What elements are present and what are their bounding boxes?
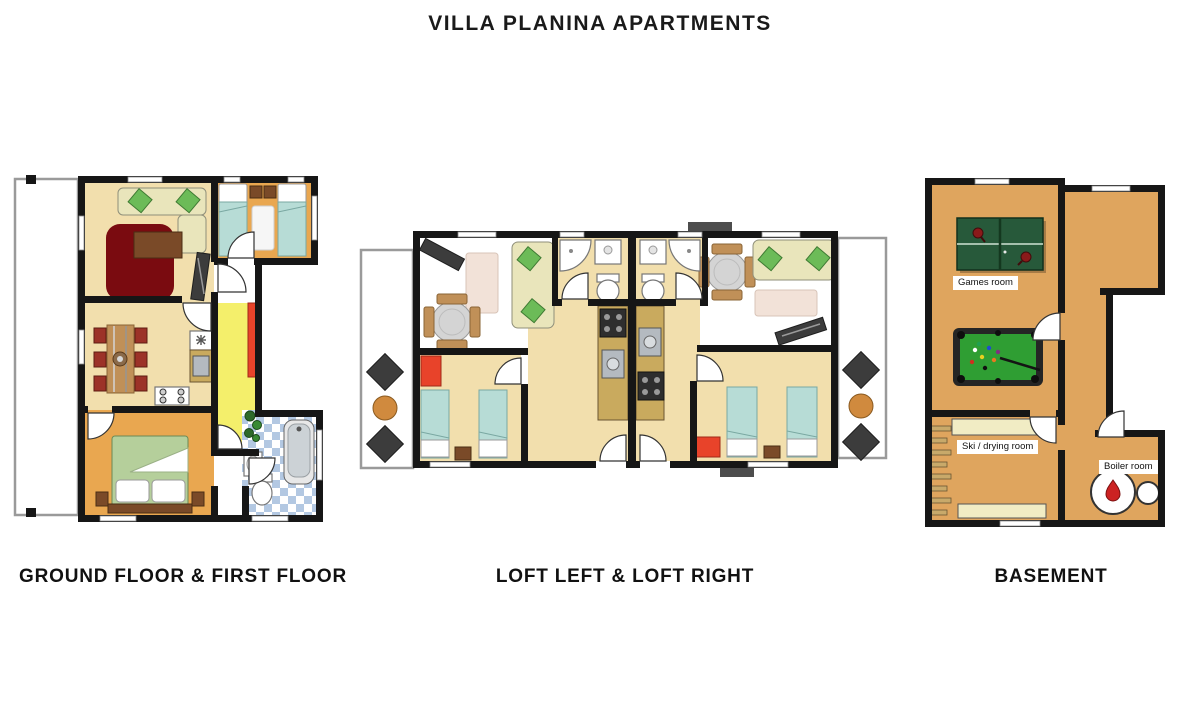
dining-table-icon <box>707 252 747 292</box>
bed-icon <box>479 390 507 458</box>
basement-floor-plan <box>918 172 1170 532</box>
window-icon <box>762 232 800 237</box>
window-icon <box>100 516 136 521</box>
sink-icon <box>604 246 612 254</box>
bench-icon <box>952 419 1040 435</box>
window-icon <box>430 462 470 467</box>
window-icon <box>128 177 162 182</box>
bed-icon <box>421 390 449 458</box>
stool-icon <box>764 446 780 458</box>
window-icon <box>252 516 288 521</box>
window-icon <box>1092 186 1130 191</box>
window-icon <box>1000 521 1040 526</box>
loft-floor-plan <box>355 222 890 480</box>
toilet-icon <box>642 280 664 302</box>
plate-icon <box>117 356 123 362</box>
bed-icon <box>278 184 306 256</box>
window-icon <box>224 177 240 182</box>
loft-caption: LOFT LEFT & LOFT RIGHT <box>496 566 754 588</box>
rug-icon <box>755 290 817 316</box>
ground-first-floor-caption: GROUND FLOOR & FIRST FLOOR <box>19 566 347 588</box>
wardrobe-icon <box>694 437 720 457</box>
pool-table-icon <box>953 328 1043 386</box>
bathtub-icon <box>284 420 314 484</box>
balcony-table-icon <box>373 396 397 420</box>
balcony-table-icon <box>849 394 873 418</box>
washer-dial <box>196 335 206 345</box>
window-icon <box>678 232 702 237</box>
balcony <box>15 179 78 515</box>
kitchen-counter <box>636 306 664 420</box>
nightstand-icon <box>96 492 108 506</box>
window-icon <box>458 232 496 237</box>
stove-icon <box>638 372 664 400</box>
corridor-floor <box>214 453 242 515</box>
rug-icon <box>252 206 274 250</box>
wardrobe-icon <box>421 356 441 386</box>
window-icon <box>79 216 84 250</box>
page-title: VILLA PLANINA APARTMENTS <box>0 12 1200 36</box>
window-icon <box>975 179 1009 184</box>
bed-icon <box>787 387 817 457</box>
bed-icon <box>727 387 757 457</box>
window-icon <box>312 196 317 240</box>
stove-icon <box>155 387 189 405</box>
stairs-room-floor <box>1060 191 1158 293</box>
bench-icon <box>958 504 1046 518</box>
stool-icon <box>455 447 471 460</box>
stove-icon <box>600 309 626 337</box>
sink-icon <box>649 246 657 254</box>
shower-drain <box>687 249 691 253</box>
toilet-icon <box>597 280 619 302</box>
window-icon <box>748 462 788 467</box>
window-icon <box>560 232 584 237</box>
rug-icon <box>466 253 498 313</box>
nightstand-icon <box>264 186 276 198</box>
coffee-table-icon <box>134 232 182 258</box>
sink-icon <box>644 336 656 348</box>
window-icon <box>317 430 322 480</box>
sink-icon <box>193 356 209 376</box>
dining-table-icon <box>432 302 472 342</box>
double-bed-icon <box>108 436 192 513</box>
tank-icon <box>1137 482 1159 504</box>
nightstand-icon <box>192 492 204 506</box>
ground-first-floor-plan <box>8 170 358 530</box>
window-icon <box>288 177 304 182</box>
games-room-label: Games room <box>953 276 1018 290</box>
shower-drain <box>569 249 573 253</box>
nightstand-icon <box>250 186 262 198</box>
window-icon <box>79 330 84 364</box>
balcony-cap <box>26 508 36 517</box>
sink-icon <box>607 358 619 370</box>
basement-caption: BASEMENT <box>994 566 1107 588</box>
ping-pong-table-icon <box>957 218 1046 273</box>
entry-step <box>688 222 732 231</box>
balcony-cap <box>26 175 36 184</box>
entry-step <box>720 468 754 477</box>
floorplan-sheet: VILLA PLANINA APARTMENTS <box>0 0 1200 720</box>
ski-drying-room-label: Ski / drying room <box>957 440 1038 454</box>
boiler-room-label: Boiler room <box>1099 460 1158 474</box>
